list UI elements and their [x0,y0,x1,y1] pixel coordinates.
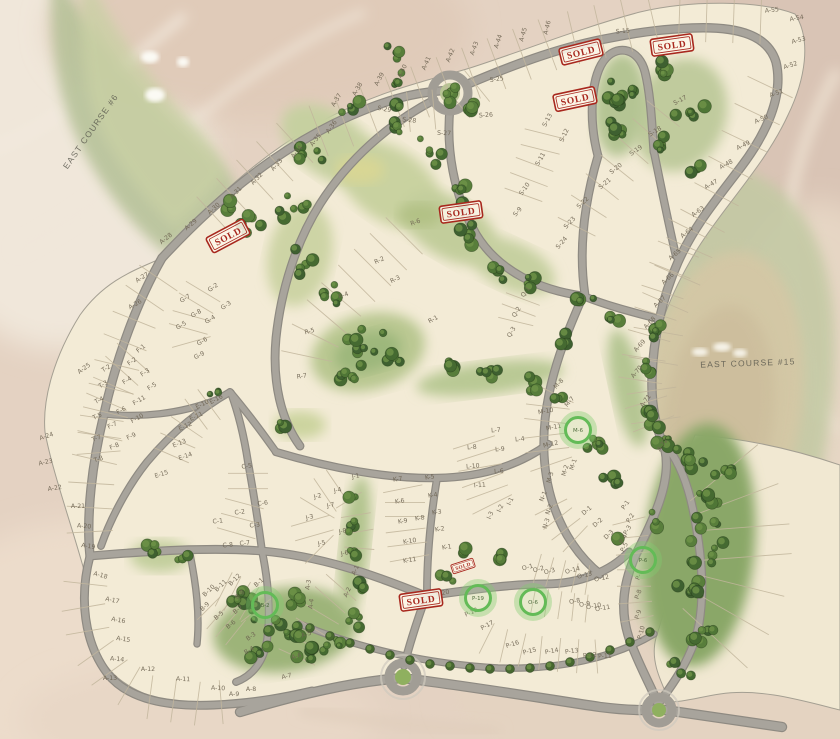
highlighted-lot-circle: B-2 [249,589,281,621]
lot-label: A-4 [307,598,315,609]
highlighted-lot-label: M-6 [573,428,584,434]
lot-label: K-6 [394,497,405,505]
lot-label: A-8 [246,686,256,693]
lot-label: A-10 [211,685,226,693]
lot-label: A-20 [77,522,92,530]
lot-label: K-1 [442,543,453,551]
lot-label: K-7 [392,475,403,483]
lot-label: A-14 [110,655,125,663]
lot-label: L-9 [495,446,505,454]
lot-label: A-21 [71,503,85,510]
highlighted-lot-circle: P-6 [627,544,659,576]
lot-label: C-8 [222,541,233,549]
lot-label: L-4 [515,436,525,444]
lot-label: C-1 [212,517,223,525]
lot-label: A-13 [103,675,117,682]
site-plan-svg: A-13A-14A-15A-16A-17A-18A-19A-20A-21A-22… [0,0,840,739]
lot-label: C-7 [239,539,250,547]
lot-label: S-15 [616,27,631,35]
lot-label: A-55 [764,6,779,14]
highlighted-lot-label: P-19 [472,596,485,602]
lot-label: I-11 [474,482,486,490]
lot-label: S-26 [479,112,494,120]
lot-label: K-2 [435,525,446,533]
lot-label: R-7 [296,372,307,380]
roundabout [639,690,679,730]
lot-label: A-12 [141,666,155,673]
lot-label: K-8 [415,514,426,522]
lot-label: S-28 [402,116,417,124]
highlighted-lot-label: O-6 [528,600,538,606]
lot-label: K-9 [397,517,408,525]
lot-label: P-11 [598,653,612,661]
lot-label: L-8 [467,444,477,452]
lot-label: K-5 [425,473,436,481]
highlighted-lot-label: B-2 [260,603,269,609]
lot-label: P-12 [583,651,597,659]
lot-label: L-6 [494,468,504,476]
lot-label: A-11 [176,676,191,684]
site-plan-map: A-13A-14A-15A-16A-17A-18A-19A-20A-21A-22… [0,0,840,739]
lot-label: C-3 [249,521,260,529]
lot-label: C-5 [241,462,252,470]
lot-label: C-2 [234,508,245,516]
lot-label: S-27 [437,130,451,137]
lot-label: K-4 [428,491,439,499]
lot-label: A-9 [229,691,240,698]
highlighted-lot-label: P-6 [639,558,648,564]
lot-label: L-10 [466,463,480,471]
highlighted-lot-circle: P-19 [462,582,494,614]
highlighted-lot-circle: O-6 [517,586,549,618]
lot-label: K-3 [432,508,443,516]
lot-label: L-7 [491,427,501,435]
highlighted-lot-circle: M-6 [562,414,594,446]
lot-label: C-6 [257,499,268,507]
roundabout [381,655,425,699]
